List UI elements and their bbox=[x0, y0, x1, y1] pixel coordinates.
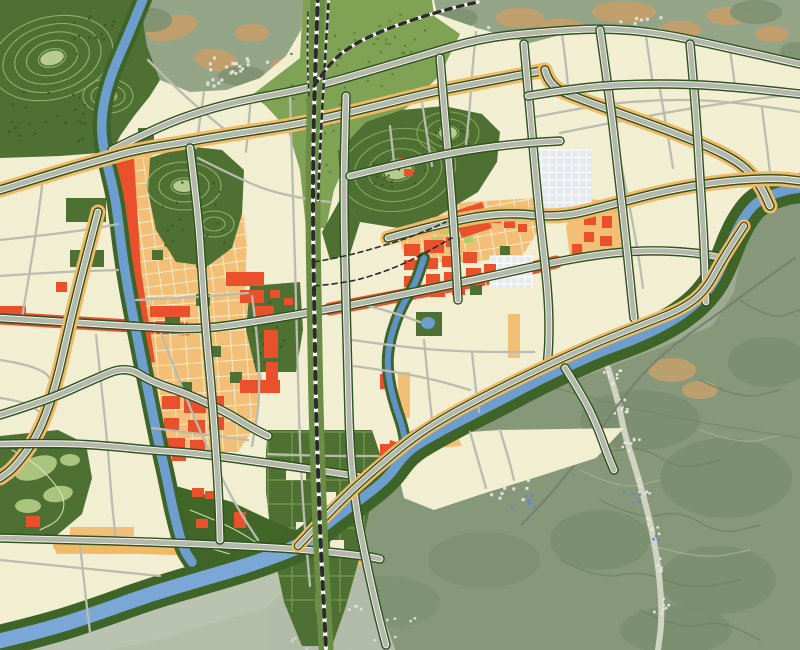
map-canvas bbox=[0, 0, 800, 650]
urban-master-plan-map[interactable] bbox=[0, 0, 800, 650]
